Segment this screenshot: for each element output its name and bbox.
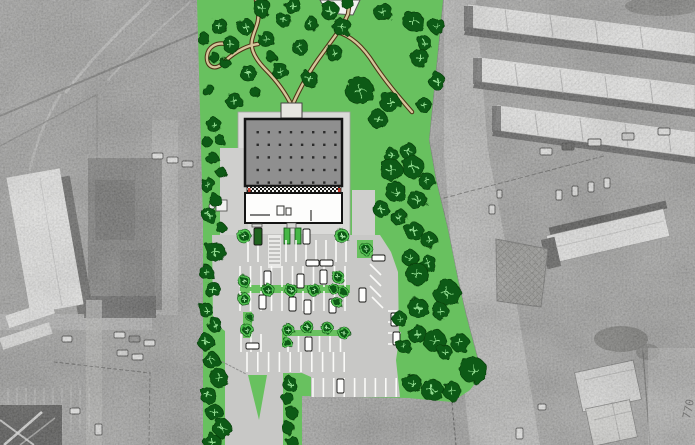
roof-dot	[301, 144, 303, 146]
tree	[202, 137, 212, 147]
tree	[403, 11, 423, 31]
store-building	[245, 103, 342, 228]
rect	[252, 224, 262, 227]
tree	[203, 352, 219, 368]
rect	[338, 188, 341, 192]
tree	[408, 298, 428, 318]
parking-tree	[332, 297, 342, 307]
roof-dot	[334, 144, 336, 146]
tree	[266, 52, 276, 62]
parking-tree	[238, 275, 250, 287]
tree	[421, 379, 443, 401]
tree	[408, 325, 426, 343]
parking-tree	[321, 322, 333, 334]
tree	[393, 312, 407, 326]
parking-tree	[241, 324, 253, 336]
tree	[285, 0, 301, 14]
tree	[451, 334, 469, 352]
car	[372, 255, 385, 261]
tree	[277, 13, 291, 27]
parking-tree	[338, 327, 350, 339]
parking-tree	[301, 321, 313, 333]
roof-dot	[257, 181, 259, 183]
tree	[333, 18, 351, 36]
entrance-step	[287, 223, 296, 228]
roof-dot	[279, 156, 281, 158]
roof-dot	[279, 169, 281, 171]
car	[289, 297, 296, 311]
tree	[419, 173, 435, 189]
tree	[429, 73, 445, 89]
tree	[286, 407, 298, 419]
tree	[438, 345, 452, 359]
parking-tree	[282, 324, 294, 336]
roof-dot	[279, 181, 281, 183]
roof-dot	[301, 169, 303, 171]
parking-tree	[360, 243, 372, 255]
parking-tree	[332, 271, 344, 283]
roof-dot	[323, 181, 325, 183]
car	[359, 288, 366, 302]
tree	[205, 242, 225, 262]
tree	[405, 222, 423, 240]
roof-dot	[268, 156, 270, 158]
tree	[302, 71, 318, 87]
tree	[373, 201, 389, 217]
tree	[434, 280, 460, 306]
site-plan-aerial-map: 770	[0, 0, 695, 445]
car	[337, 379, 344, 393]
tree	[341, 0, 353, 9]
tree	[211, 18, 227, 34]
parking-tree	[246, 313, 254, 321]
tree	[207, 118, 221, 132]
tree	[223, 37, 239, 53]
roof-dot	[334, 169, 336, 171]
roof-dot	[257, 144, 259, 146]
car	[304, 300, 311, 314]
tree	[397, 339, 411, 353]
tree	[200, 387, 216, 403]
tree	[403, 374, 421, 392]
tree	[429, 18, 445, 34]
tree	[209, 194, 221, 206]
parking-tree	[329, 284, 339, 294]
car	[303, 229, 310, 244]
tree	[199, 265, 213, 279]
tree	[206, 152, 218, 164]
tree	[391, 209, 407, 225]
parking-tree	[238, 293, 250, 305]
tree	[216, 167, 226, 177]
roof-dot	[257, 169, 259, 171]
tree	[216, 223, 226, 233]
tree	[258, 31, 274, 47]
tree	[250, 87, 260, 97]
roof-dot	[279, 131, 281, 133]
parking-tree	[335, 229, 349, 243]
roof-dot	[312, 156, 314, 158]
tree	[286, 436, 298, 445]
roof-dot	[334, 156, 336, 158]
tree	[210, 369, 228, 387]
rear-entrance-pavilion	[281, 103, 302, 118]
parking-tree	[338, 287, 348, 297]
building-roof	[245, 119, 342, 186]
tree	[208, 318, 222, 332]
roof-dot	[323, 131, 325, 133]
car	[259, 295, 266, 309]
tree	[198, 334, 214, 350]
parking-tree	[285, 284, 297, 296]
side-apron	[352, 190, 375, 236]
car	[305, 337, 312, 351]
car	[264, 271, 271, 285]
roof-dot	[290, 169, 292, 171]
tree	[213, 419, 231, 437]
tree	[215, 135, 225, 145]
cart-corral	[284, 228, 290, 244]
tree	[321, 2, 339, 20]
roof-dot	[323, 156, 325, 158]
roof-dot	[301, 131, 303, 133]
tree	[417, 36, 431, 50]
roof-dot	[268, 131, 270, 133]
rect	[248, 188, 251, 192]
scene-root: 770	[0, 0, 695, 445]
tree	[283, 377, 297, 391]
tree	[198, 33, 210, 45]
tree	[460, 357, 486, 383]
tree	[374, 3, 392, 21]
tree	[421, 232, 437, 248]
tree	[406, 263, 428, 285]
roof-dot	[290, 181, 292, 183]
parking-tree	[237, 229, 251, 243]
tree	[240, 65, 256, 81]
tree	[282, 393, 294, 405]
car	[320, 270, 327, 284]
parking-tree	[282, 338, 292, 348]
roof-dot	[312, 169, 314, 171]
tree	[199, 303, 213, 317]
tree	[202, 84, 214, 96]
roof-dot	[268, 181, 270, 183]
tree	[326, 45, 342, 61]
tree	[386, 182, 406, 202]
roof-dot	[257, 156, 259, 158]
car	[246, 343, 259, 349]
roof-dot	[290, 131, 292, 133]
tree	[380, 159, 402, 181]
tree	[202, 208, 216, 222]
tree	[206, 404, 222, 420]
tree	[220, 58, 230, 68]
tree	[408, 191, 426, 209]
roof-dot	[290, 156, 292, 158]
roof-dot	[323, 144, 325, 146]
tree	[272, 63, 288, 79]
tree	[205, 282, 221, 298]
tree	[443, 382, 461, 400]
roof-dot	[268, 144, 270, 146]
tree	[369, 110, 387, 128]
roof-dot	[312, 144, 314, 146]
roof-dot	[323, 169, 325, 171]
roof-dot	[290, 144, 292, 146]
tree	[201, 178, 215, 192]
tree	[346, 77, 374, 105]
tree	[253, 0, 271, 17]
roof-dot	[257, 131, 259, 133]
tree	[417, 98, 431, 112]
car	[297, 274, 304, 288]
tree	[226, 93, 242, 109]
tree	[411, 49, 429, 67]
roof-dot	[312, 181, 314, 183]
delivery-van	[254, 228, 262, 245]
roof-dot	[279, 144, 281, 146]
parking-tree	[262, 284, 274, 296]
roof-dot	[334, 131, 336, 133]
tree	[380, 92, 400, 112]
tree	[282, 422, 294, 434]
roof-dot	[268, 169, 270, 171]
car	[306, 260, 319, 266]
site-plan-aerial-screenshot: 770	[0, 0, 695, 445]
roof-dot	[301, 181, 303, 183]
tree	[209, 52, 219, 62]
tree	[292, 39, 308, 55]
parking-tree	[308, 284, 320, 296]
roof-dot	[312, 131, 314, 133]
building-storefront	[245, 193, 342, 223]
tree	[238, 19, 254, 35]
roof-dot	[301, 156, 303, 158]
tree	[402, 156, 424, 178]
tree	[432, 303, 448, 319]
roof-dot	[334, 181, 336, 183]
car	[320, 260, 333, 266]
tree	[304, 17, 318, 31]
